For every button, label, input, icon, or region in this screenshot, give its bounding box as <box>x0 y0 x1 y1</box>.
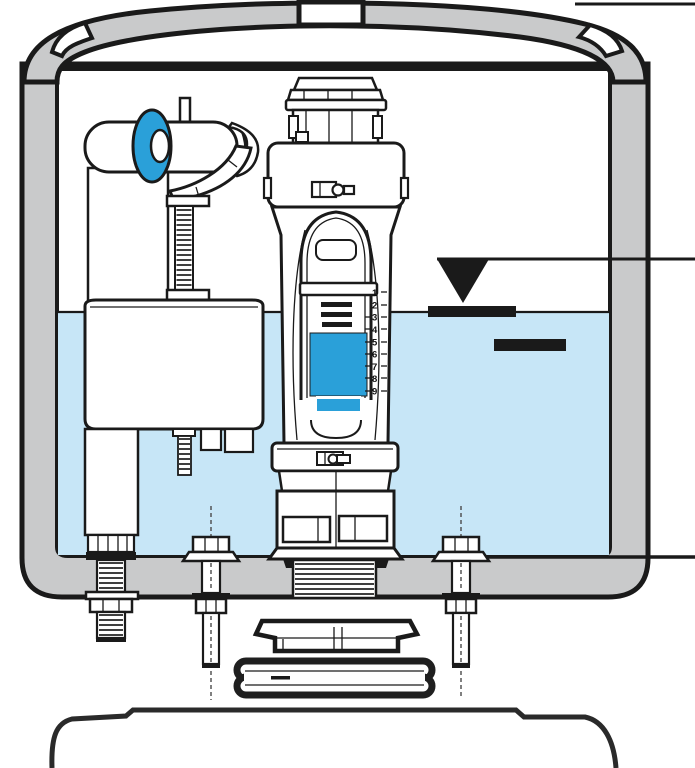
fill-valve-upper-column <box>88 168 168 304</box>
flush-valve-flare <box>269 548 402 559</box>
float-lower-section <box>317 399 360 411</box>
bolt-tail-cap <box>202 664 220 668</box>
scale-label-9: 9 <box>372 387 377 398</box>
fill-valve-ring-hole <box>151 130 169 162</box>
arch-insert <box>316 240 356 260</box>
arch-crossbar <box>300 283 377 295</box>
bowl-top-outline <box>52 710 616 768</box>
cup-fitting-a <box>201 429 221 450</box>
scale-label-6: 6 <box>372 350 377 361</box>
upper-lever-stub <box>344 186 354 194</box>
scale-label-7: 7 <box>372 362 377 373</box>
upper-body-tab-left <box>264 178 271 198</box>
base-window-left <box>283 517 330 542</box>
cup-screw-head <box>173 429 195 436</box>
fill-valve-float-cup <box>85 300 263 429</box>
lid-button-opening <box>299 2 363 25</box>
foam-gasket-mark <box>271 676 290 680</box>
fill-valve-lower-tube <box>85 429 138 535</box>
bolt-flange <box>183 552 239 561</box>
cistern-diagram: 1 2 3 4 5 6 7 8 9 <box>0 0 695 768</box>
grate-bar-1 <box>321 302 352 307</box>
upper-body-tab-right <box>401 178 408 198</box>
flush-valve: 1 2 3 4 5 6 7 8 9 <box>264 78 408 598</box>
cage-top-plate <box>294 78 377 90</box>
cage-latch <box>296 132 308 142</box>
tank-top-rim <box>36 62 636 71</box>
base-window-right <box>339 516 387 541</box>
scale-label-4: 4 <box>372 325 378 336</box>
cone-washer-outline <box>256 621 417 651</box>
grate-bar-2 <box>321 312 352 317</box>
bolt-tail-cap <box>452 664 470 668</box>
fill-valve-tail-cap <box>96 638 126 642</box>
arch-bottom-opening <box>311 420 361 438</box>
grate-bar-3 <box>322 322 352 327</box>
fill-valve-seal-washer <box>86 552 136 560</box>
diagram-canvas: 1 2 3 4 5 6 7 8 9 <box>0 0 695 768</box>
water-level-bar-upper <box>428 306 516 317</box>
scale-label-1: 1 <box>372 288 378 299</box>
scale-label-3: 3 <box>372 313 377 324</box>
cage-clip-right <box>373 116 382 138</box>
bolt-nut <box>446 599 476 613</box>
scale-label-8: 8 <box>372 374 377 385</box>
cage-wide-plate <box>286 100 386 110</box>
upper-lever-pin <box>333 185 344 196</box>
cage-mid-section <box>288 90 383 100</box>
float-gap-line <box>316 396 361 399</box>
scale-label-5: 5 <box>372 338 378 349</box>
flush-valve-float <box>310 333 367 396</box>
ring-lever-stub <box>337 455 350 463</box>
cone-sealing-washer <box>256 621 417 651</box>
foam-gasket <box>237 661 432 695</box>
bolt-flange <box>433 552 489 561</box>
flush-valve-neck <box>279 471 391 491</box>
bolt-nut <box>196 599 226 613</box>
bolt-head <box>193 537 229 552</box>
bolt-head <box>443 537 479 552</box>
fill-valve-nut <box>90 599 132 612</box>
adjuster-top-bracket <box>167 196 209 206</box>
scale-label-2: 2 <box>372 301 377 312</box>
cup-fitting-b <box>225 429 253 452</box>
water-level-bar-lower <box>494 339 566 351</box>
